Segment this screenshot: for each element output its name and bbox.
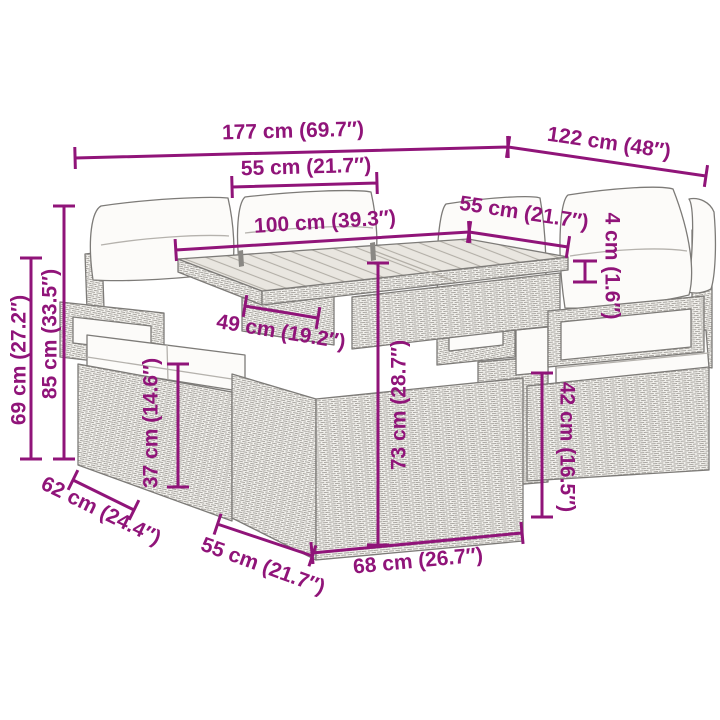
table-top-peg-center — [370, 242, 376, 261]
dim-label-chair-seat-height: 42 cm (16.5″) — [557, 382, 578, 512]
dim-label-sofa-seat-height: 37 cm (14.6″) — [141, 358, 162, 488]
front-chair-back-cushion — [560, 187, 692, 308]
dim-label-sofa-seat-width: 55 cm (21.7″) — [241, 155, 372, 180]
table-pedestal-front — [316, 378, 523, 560]
rear-chair-seat-cushion — [516, 327, 548, 375]
table-drawing — [178, 239, 568, 560]
table-top-peg-left — [238, 250, 244, 267]
dim-label-table-top-thickness: 4 cm (1.6″) — [602, 213, 623, 320]
dim-label-armrest-height: 69 cm (27.2″) — [9, 295, 30, 425]
dim-label-table-height: 73 cm (28.7″) — [389, 340, 410, 470]
front-chair-base — [527, 367, 709, 481]
dim-label-back-height: 85 cm (33.5″) — [40, 269, 61, 399]
dim-label-total-width: 177 cm (69.7″) — [222, 119, 364, 144]
dimension-diagram: 177 cm (69.7″) 122 cm (48″) 55 cm (21.7″… — [0, 0, 720, 720]
front-chair-body-drawing — [527, 296, 709, 481]
furniture-illustration — [0, 0, 720, 720]
